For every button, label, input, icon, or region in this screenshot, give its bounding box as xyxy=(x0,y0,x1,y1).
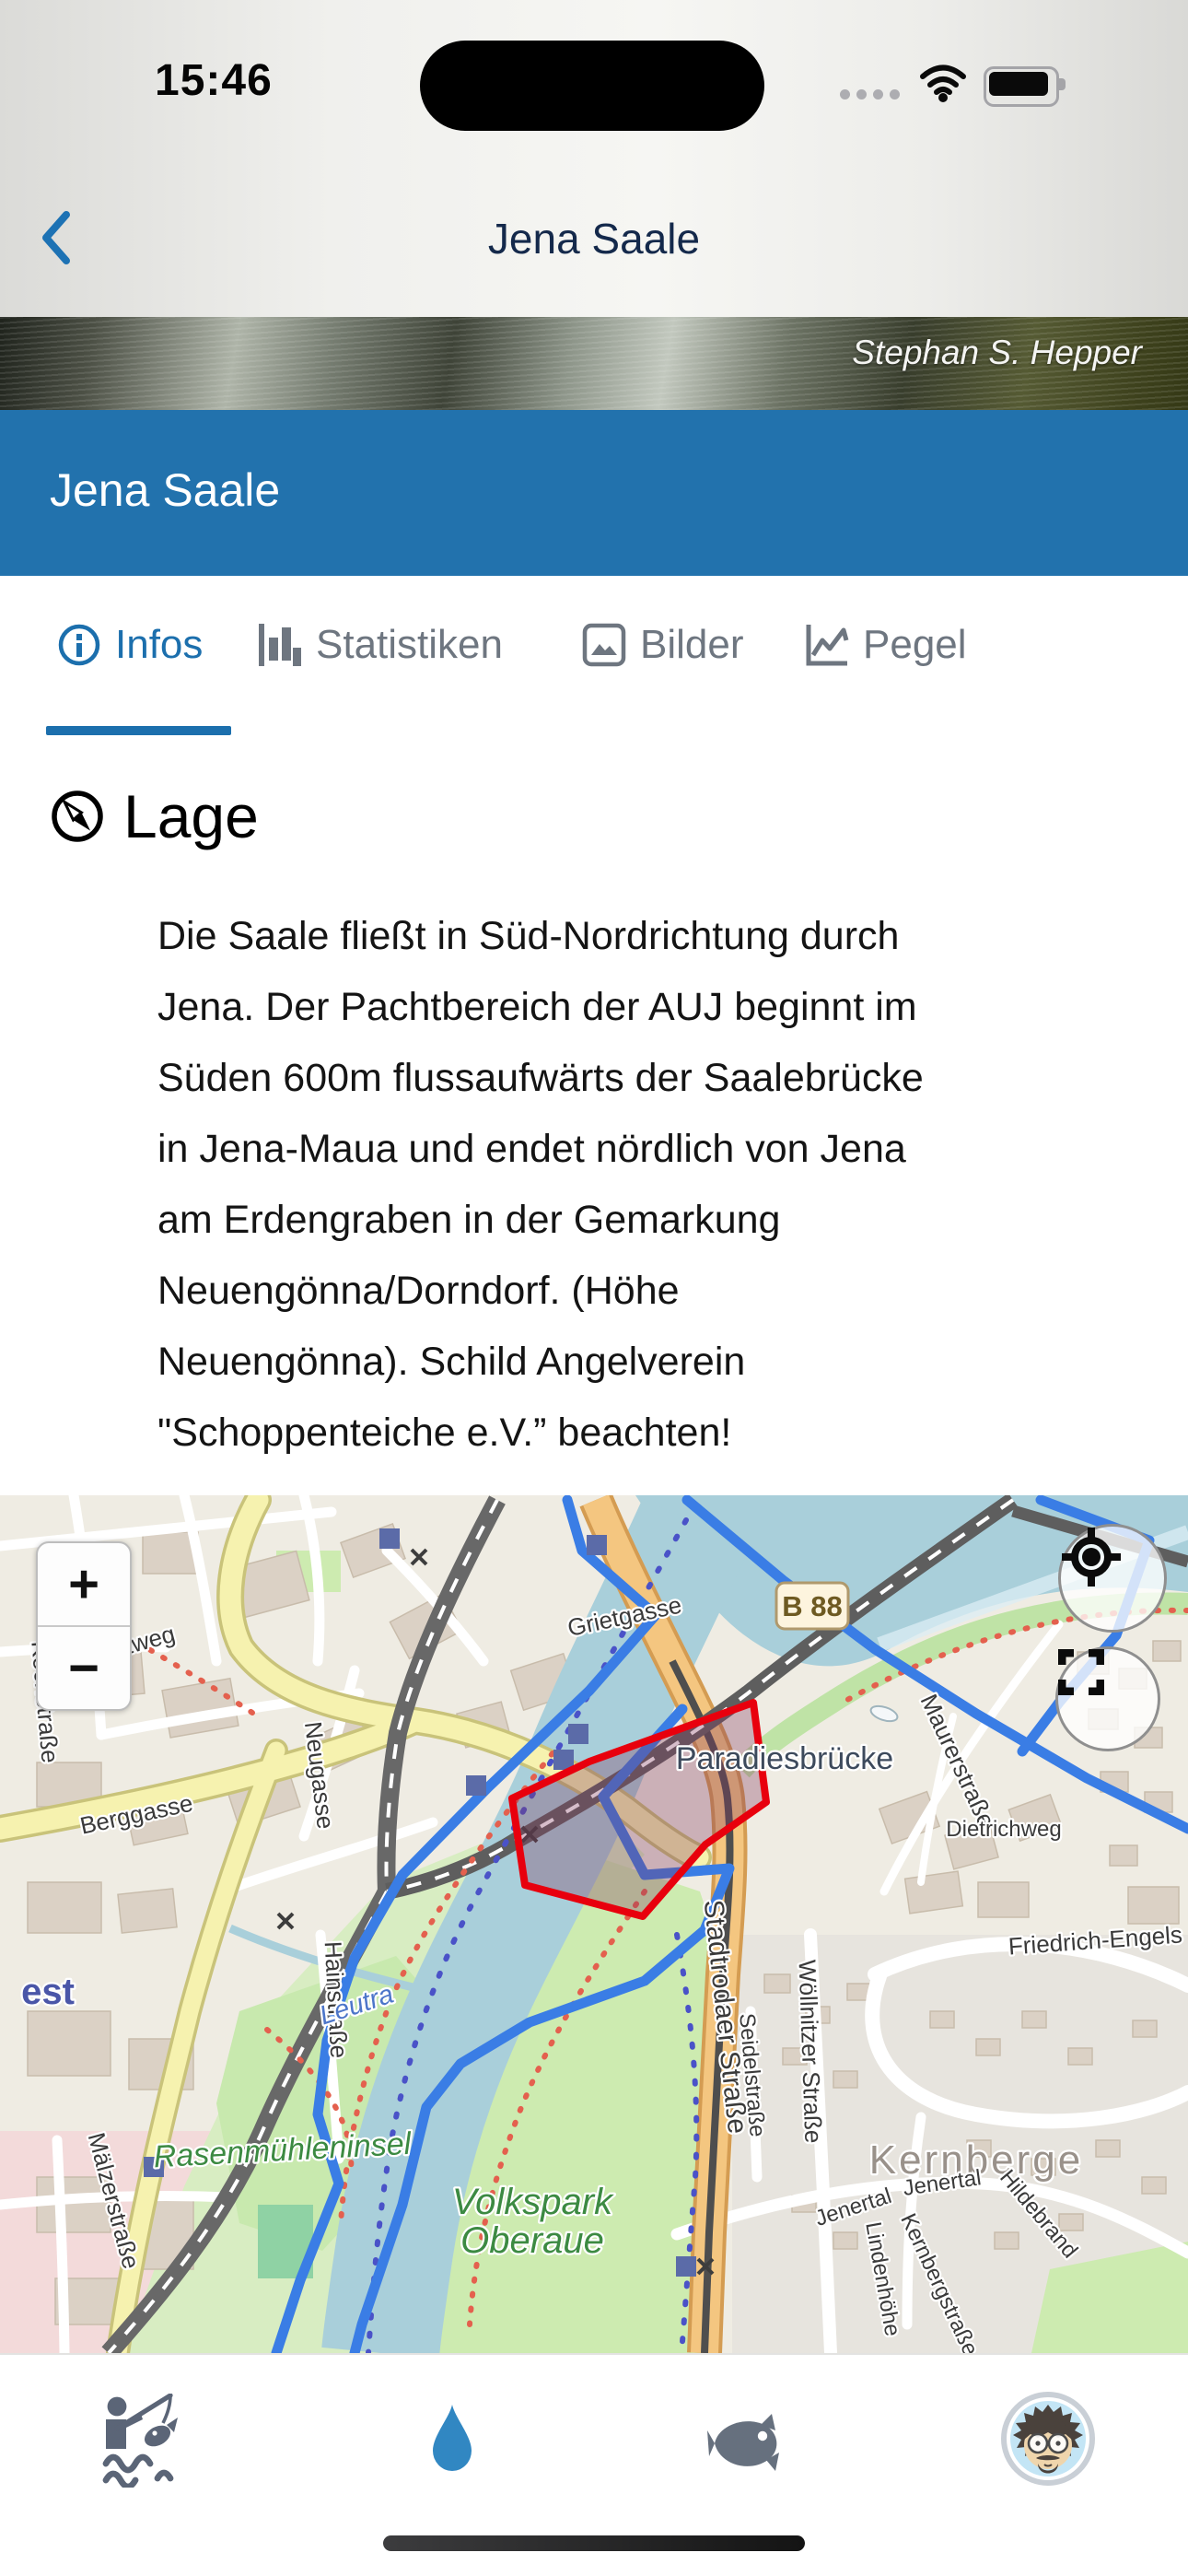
water-banner: Jena Saale xyxy=(0,410,1188,576)
app-screen: 15:46 Jena Saale Stephan S. Hepper Jena … xyxy=(0,0,1188,2576)
info-icon xyxy=(57,623,101,667)
bar-chart-icon xyxy=(256,622,302,668)
water-name: Jena Saale xyxy=(50,463,280,517)
tab-bilder[interactable]: Bilder xyxy=(582,622,744,668)
angler-icon xyxy=(100,2394,198,2488)
locate-me-button[interactable] xyxy=(1058,1524,1167,1633)
bottom-tab-fish[interactable] xyxy=(705,2412,798,2477)
road-badge-b88: B 88 xyxy=(776,1583,848,1629)
cellular-signal-icon xyxy=(840,89,900,100)
nav-title: Jena Saale xyxy=(0,214,1188,263)
svg-text:est: est xyxy=(21,1972,75,2012)
active-tab-underline xyxy=(46,726,231,735)
svg-text:Oberaue: Oberaue xyxy=(460,2220,604,2261)
tab-label: Statistiken xyxy=(316,622,503,668)
map-canvas[interactable]: B 88 Grietgasse Forstweg Kochstraße Berg… xyxy=(0,1495,1188,2353)
svg-text:Paradiesbrücke: Paradiesbrücke xyxy=(676,1741,893,1776)
wifi-icon xyxy=(917,63,969,103)
line-chart-icon xyxy=(803,622,849,668)
battery-nub xyxy=(1059,78,1066,90)
tab-statistiken[interactable]: Statistiken xyxy=(256,622,503,668)
status-time: 15:46 xyxy=(155,55,273,106)
dynamic-island xyxy=(420,41,764,131)
map-zoom-control: + − xyxy=(36,1541,132,1711)
section-header: Lage xyxy=(50,781,259,851)
zoom-in-button[interactable]: + xyxy=(38,1543,130,1625)
compass-icon xyxy=(50,789,105,844)
section-body: Die Saale fließt in Süd-Nordrichtung dur… xyxy=(157,901,1060,1469)
crosshair-icon xyxy=(1061,1527,1122,1587)
tab-bar: Infos Statistiken Bilder Pegel xyxy=(0,576,1188,758)
tab-pegel[interactable]: Pegel xyxy=(803,622,967,668)
fullscreen-button[interactable] xyxy=(1055,1646,1160,1751)
zoom-out-button[interactable]: − xyxy=(38,1627,130,1709)
photo-credit: Stephan S. Hepper xyxy=(852,334,1142,372)
map-graphic: B 88 Grietgasse Forstweg Kochstraße Berg… xyxy=(0,1495,1188,2353)
home-indicator[interactable] xyxy=(383,2535,805,2551)
tab-label: Pegel xyxy=(863,622,967,668)
bottom-tab-angler[interactable] xyxy=(100,2394,198,2492)
tab-label: Bilder xyxy=(640,622,744,668)
fullscreen-icon xyxy=(1058,1649,1104,1695)
bottom-tab-waters[interactable] xyxy=(425,2405,479,2477)
tab-infos[interactable]: Infos xyxy=(57,622,203,668)
bottom-tab-profile[interactable] xyxy=(1001,2392,1095,2490)
avatar xyxy=(1001,2392,1095,2486)
battery-fill xyxy=(989,72,1048,96)
hero-photo: Stephan S. Hepper xyxy=(0,317,1188,410)
tab-label: Infos xyxy=(115,622,203,668)
svg-text:B 88: B 88 xyxy=(782,1590,842,1622)
fish-icon xyxy=(705,2412,798,2473)
section-title: Lage xyxy=(123,781,259,851)
svg-text:Dietrichweg: Dietrichweg xyxy=(946,1817,1061,1842)
image-icon xyxy=(582,623,626,667)
bottom-tab-bar xyxy=(0,2353,1188,2576)
water-drop-icon xyxy=(425,2405,479,2473)
svg-text:Volkspark: Volkspark xyxy=(452,2182,614,2222)
